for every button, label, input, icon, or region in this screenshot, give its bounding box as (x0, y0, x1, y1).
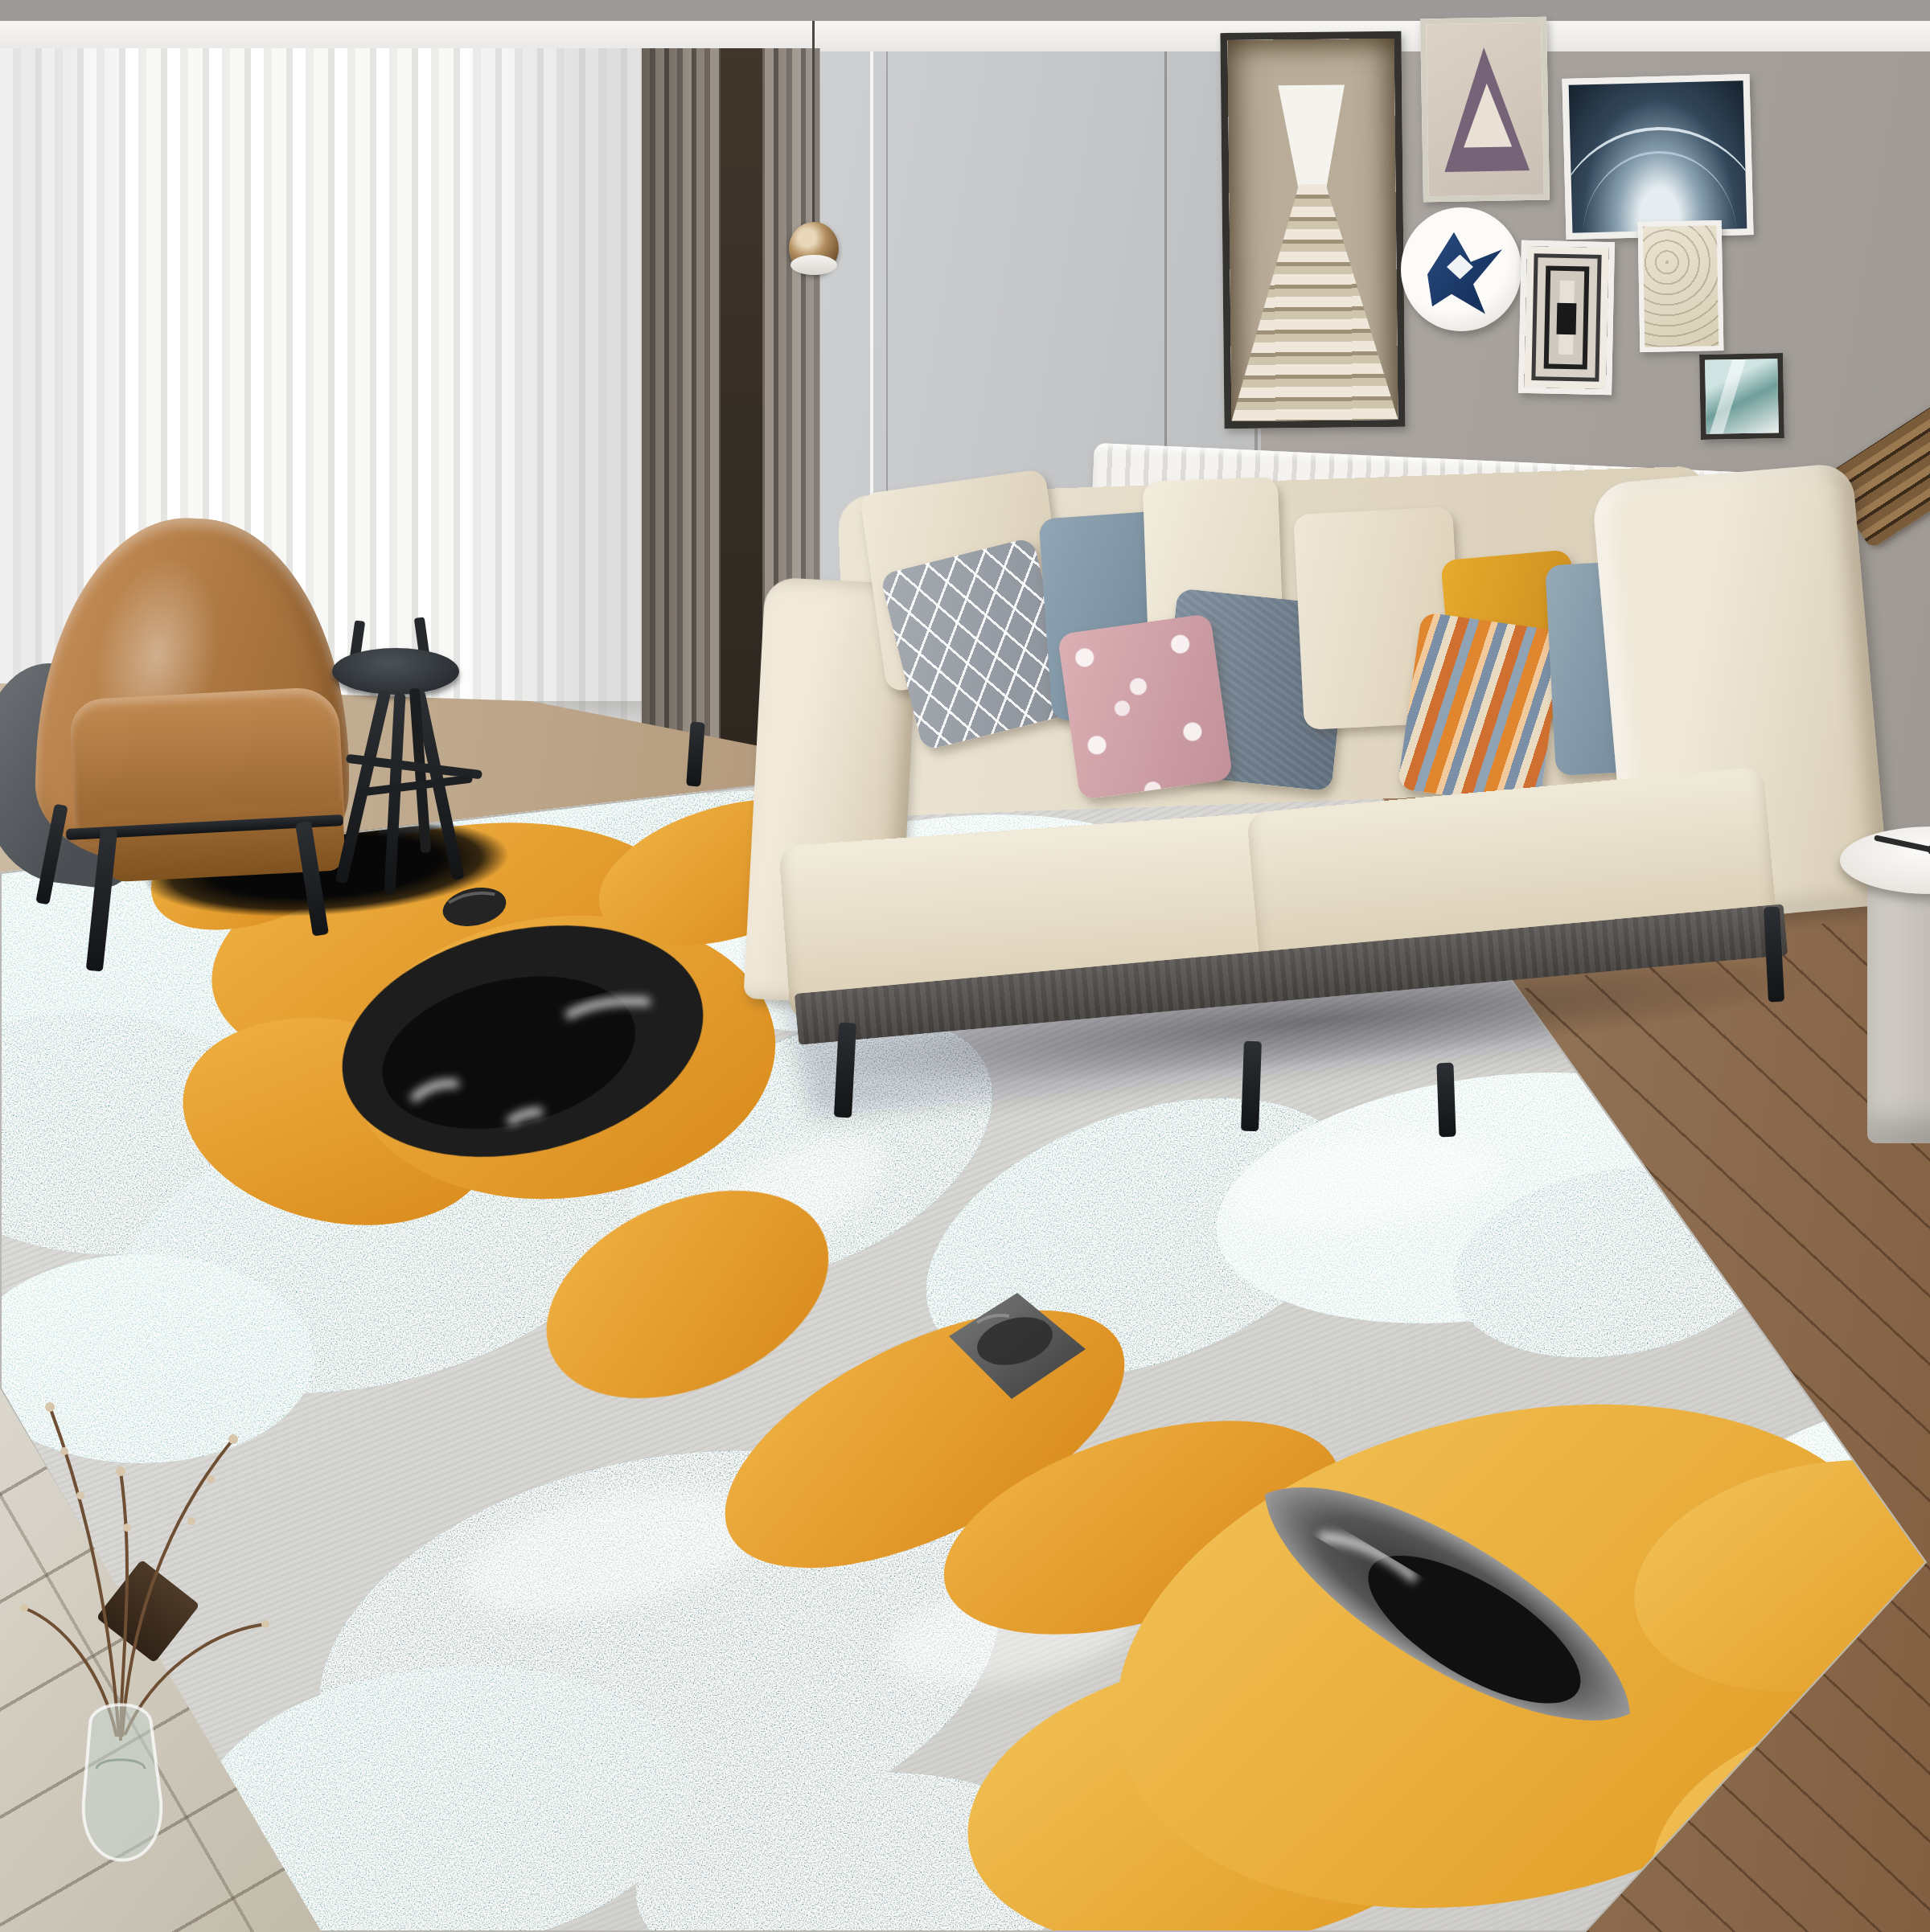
stairs-art (1228, 39, 1398, 421)
sofa-leg (1436, 1063, 1456, 1138)
pillow-striped (1397, 612, 1563, 809)
frame-purple-tunnel (1420, 17, 1550, 203)
frame-stairs-photo (1220, 31, 1405, 429)
frame-xray-arch (1562, 74, 1753, 240)
frame-bw-tunnel (1518, 240, 1615, 395)
pillow-pink-floral (1057, 613, 1233, 801)
side-table-body (1867, 870, 1930, 1143)
pendant-cord (812, 21, 815, 228)
frame-teal-abstract (1699, 353, 1784, 440)
beige-art (1643, 225, 1719, 347)
pendant-lamp (789, 222, 839, 275)
decorative-plate (1401, 207, 1521, 331)
ceiling-band (0, 0, 1930, 21)
teal-art (1705, 359, 1779, 434)
sofa-leg (1241, 1041, 1262, 1132)
stool (332, 648, 459, 695)
purple-tunnel-art (1426, 23, 1544, 196)
xray-art (1569, 80, 1747, 233)
frame-beige-abstract (1638, 220, 1724, 352)
vase-with-branches (0, 1286, 346, 1932)
curtain-fold-shadow (721, 48, 762, 756)
crown-molding (0, 21, 1930, 51)
living-room-photo (0, 0, 1930, 1932)
bw-tunnel-art (1524, 246, 1609, 389)
